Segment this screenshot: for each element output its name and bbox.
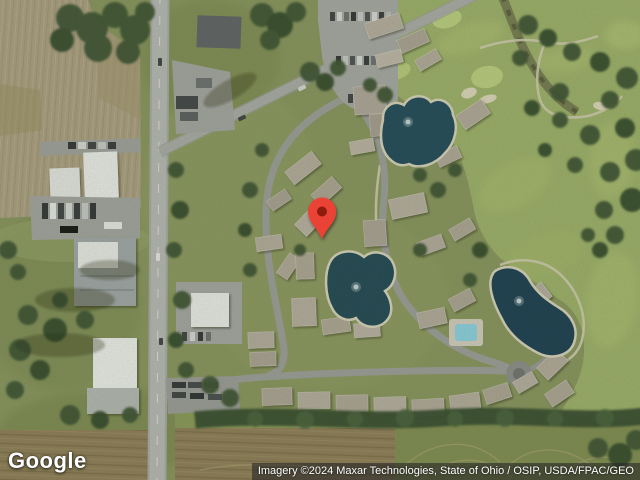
map-viewport[interactable]: Google Imagery ©2024 Maxar Technologies,… bbox=[0, 0, 640, 480]
attribution-bar: Imagery ©2024 Maxar Technologies, State … bbox=[252, 463, 640, 480]
satellite-imagery bbox=[0, 0, 640, 480]
texture-overlay bbox=[0, 0, 640, 480]
google-logo[interactable]: Google bbox=[8, 448, 87, 474]
attribution-text: Imagery ©2024 Maxar Technologies, State … bbox=[258, 463, 634, 480]
